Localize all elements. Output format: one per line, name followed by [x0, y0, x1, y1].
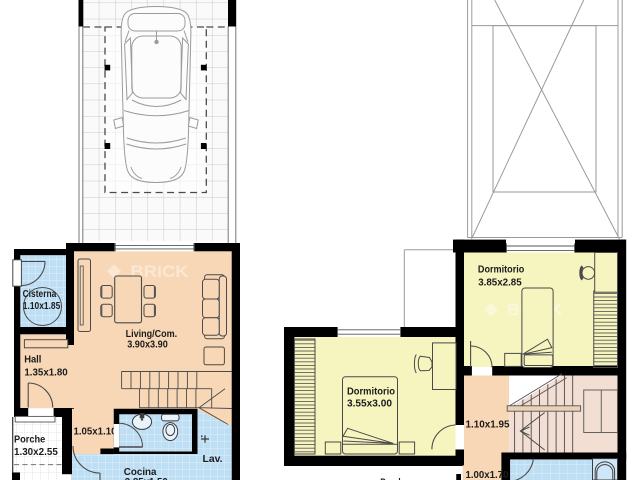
svg-text:1.35x1.80: 1.35x1.80 [24, 367, 68, 378]
svg-text:1.05x1.10: 1.05x1.10 [74, 427, 117, 438]
svg-text:Hall: Hall [24, 354, 41, 365]
svg-text:3.55x3.00: 3.55x3.00 [347, 399, 392, 410]
svg-text:Dormitorio: Dormitorio [347, 387, 395, 398]
svg-text:Living/Com.: Living/Com. [126, 329, 178, 340]
svg-text:1.10x1.85: 1.10x1.85 [23, 301, 61, 312]
svg-text:Porche: Porche [14, 434, 46, 445]
svg-text:Cisterna: Cisterna [23, 289, 57, 300]
svg-text:1.30x2.55: 1.30x2.55 [14, 447, 58, 458]
svg-text:3.85x2.85: 3.85x2.85 [478, 277, 522, 288]
svg-text:Dormitorio: Dormitorio [478, 265, 524, 276]
svg-text:3.90x3.90: 3.90x3.90 [127, 340, 168, 351]
svg-text:Lav.: Lav. [203, 454, 223, 465]
svg-text:1.10x1.95: 1.10x1.95 [466, 419, 510, 430]
svg-text:1.00x1.70: 1.00x1.70 [466, 470, 509, 480]
